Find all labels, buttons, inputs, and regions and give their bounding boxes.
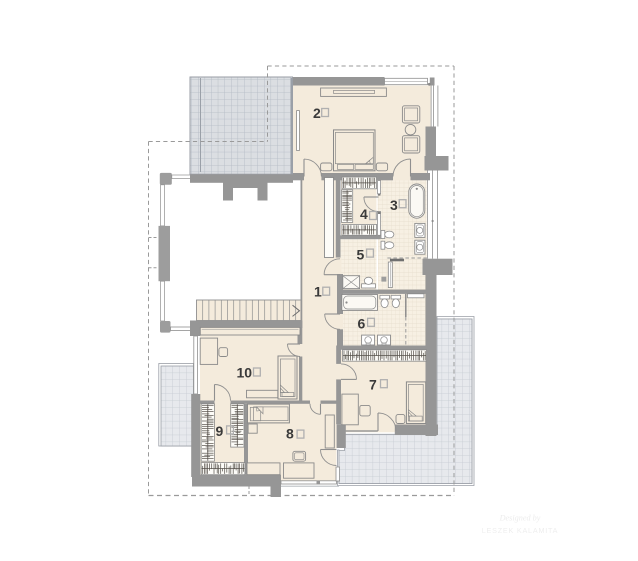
- svg-text:8: 8: [286, 426, 294, 442]
- svg-text:1: 1: [314, 284, 322, 300]
- svg-text:2: 2: [313, 105, 321, 121]
- svg-text:4: 4: [360, 206, 368, 222]
- svg-text:LESZEK KALAMITA: LESZEK KALAMITA: [482, 526, 559, 535]
- svg-text:Designed by: Designed by: [499, 514, 541, 523]
- svg-text:10: 10: [237, 365, 253, 381]
- svg-text:3: 3: [390, 197, 398, 213]
- svg-text:5: 5: [357, 247, 365, 263]
- svg-text:9: 9: [216, 423, 224, 439]
- svg-text:7: 7: [369, 377, 377, 393]
- svg-text:6: 6: [358, 316, 366, 332]
